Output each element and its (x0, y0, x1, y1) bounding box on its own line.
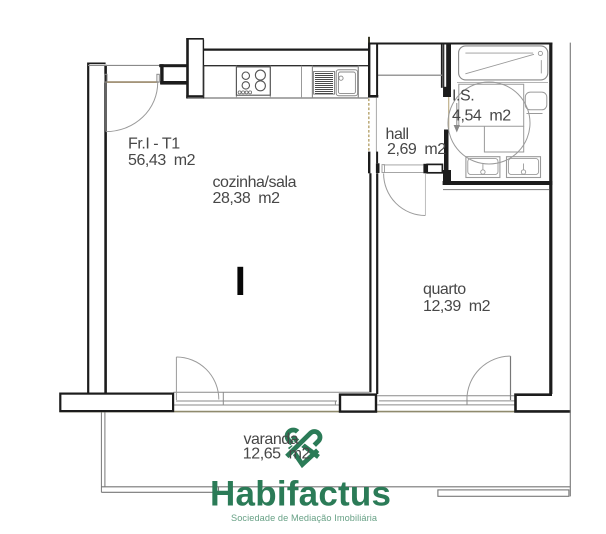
svg-text:Habifactus: Habifactus (210, 475, 391, 514)
svg-text:quarto: quarto (423, 281, 466, 298)
svg-text:2,69 m2: 2,69 m2 (387, 141, 446, 158)
svg-text:12,65 m2: 12,65 m2 (243, 446, 311, 463)
svg-text:Sociedade de Mediação Imobiliá: Sociedade de Mediação Imobiliária (231, 513, 378, 523)
svg-text:Fr.I - T1: Fr.I - T1 (128, 136, 180, 153)
svg-text:I.S.: I.S. (452, 88, 474, 105)
svg-text:56,43 m2: 56,43 m2 (128, 152, 196, 169)
svg-text:cozinha/sala: cozinha/sala (213, 174, 297, 191)
svg-text:28,38 m2: 28,38 m2 (213, 190, 281, 207)
svg-text:4,54 m2: 4,54 m2 (452, 108, 511, 125)
svg-text:12,39 m2: 12,39 m2 (423, 298, 491, 315)
